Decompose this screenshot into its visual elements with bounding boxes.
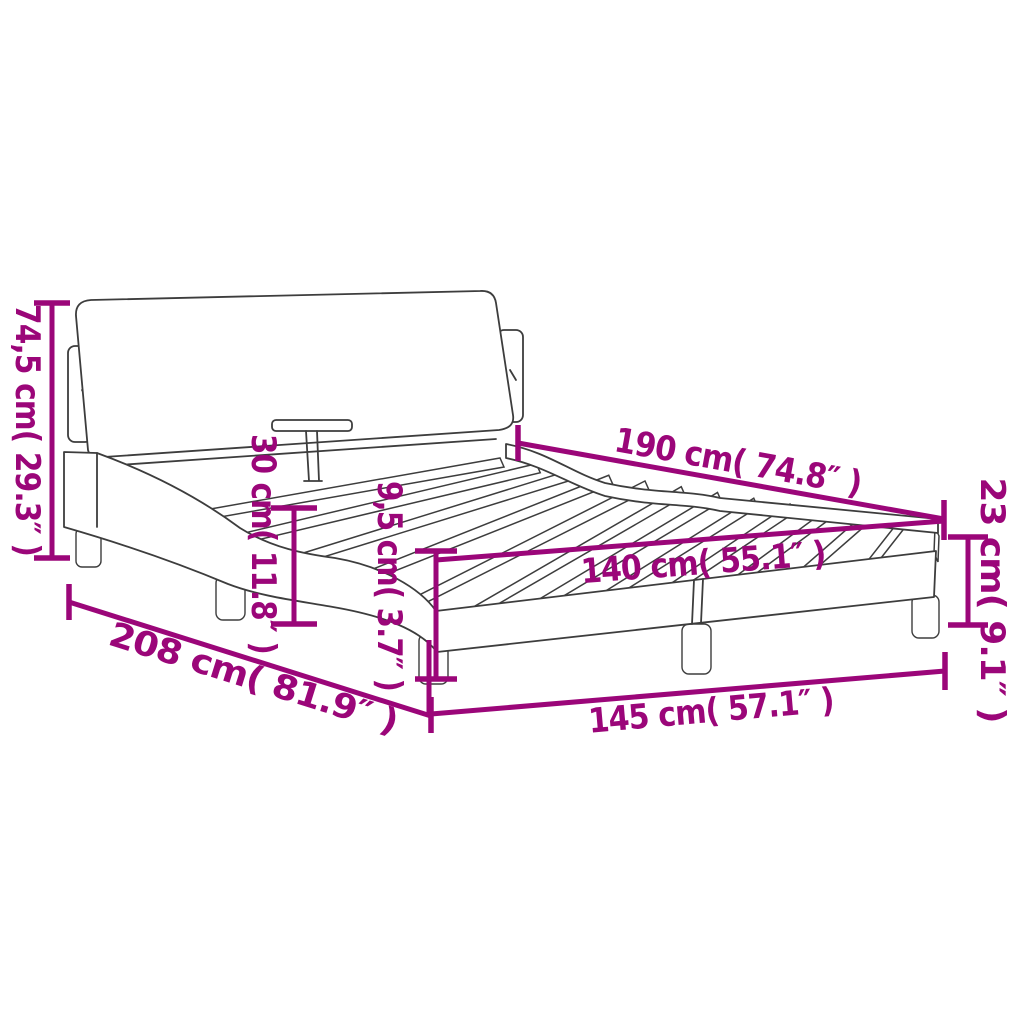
dim-label-headboard-total-height: 74,5 cm( 29.3″ ) [7,304,47,556]
diagram-page: 74,5 cm( 29.3″ ) 30 cm( 11.8″ ) 9,5 cm( … [0,0,1024,1024]
dim-label-rail-thickness: 9,5 cm( 3.7″ ) [369,481,409,691]
leg [682,624,711,674]
leg [912,595,939,638]
dim-label-frame-side-height: 23 cm( 9.1″ ) [972,478,1012,723]
dim-label-headboard-above-frame: 30 cm( 11.8″ ) [243,434,283,654]
headboard-center-bracket [272,420,352,431]
bed-dimension-diagram: 74,5 cm( 29.3″ ) 30 cm( 11.8″ ) 9,5 cm( … [0,0,1024,1024]
headboard-panel [76,291,513,457]
